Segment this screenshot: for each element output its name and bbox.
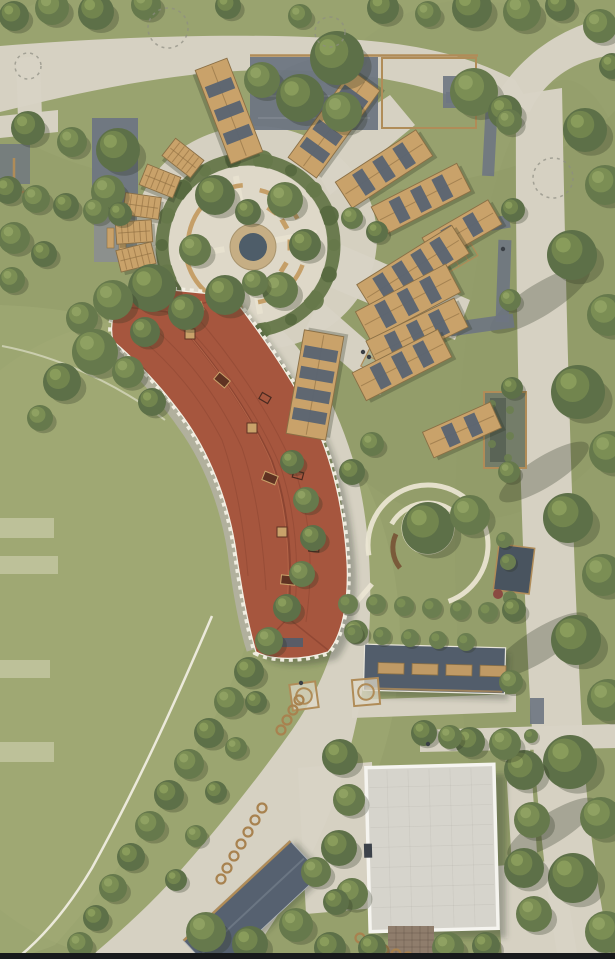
tree-canopy-highlight xyxy=(328,744,339,755)
tree-canopy-highlight xyxy=(556,238,571,253)
tree-canopy-highlight xyxy=(58,197,66,205)
chimney xyxy=(277,527,287,537)
tree-canopy-highlight xyxy=(505,380,512,387)
tree-canopy-highlight xyxy=(411,510,427,526)
tree-canopy-highlight xyxy=(495,733,505,743)
hedge-shrub xyxy=(285,313,297,325)
tree-canopy-highlight xyxy=(416,724,424,732)
shrub-highlight xyxy=(459,635,467,643)
tree-canopy-highlight xyxy=(552,743,568,759)
tree-canopy-highlight xyxy=(239,662,248,671)
tree-canopy-highlight xyxy=(169,872,176,879)
play-square-frame xyxy=(352,678,380,706)
shrub-highlight xyxy=(347,627,355,635)
tree-canopy-highlight xyxy=(328,893,336,901)
tree-canopy-highlight xyxy=(260,631,268,639)
tree-canopy-highlight xyxy=(199,723,208,732)
tree-canopy-highlight xyxy=(292,8,299,15)
shrub-highlight xyxy=(526,731,532,737)
tree-canopy-highlight xyxy=(100,286,112,298)
tree-canopy-highlight xyxy=(320,937,330,947)
tree-canopy-highlight xyxy=(88,202,96,210)
tree-canopy-highlight xyxy=(104,135,117,148)
slate-roof-building xyxy=(363,644,506,694)
tree-canopy-highlight xyxy=(420,5,428,13)
tree-canopy-highlight xyxy=(140,816,149,825)
bottom-bar xyxy=(0,953,615,959)
person-figure xyxy=(361,350,365,354)
tree-canopy-highlight xyxy=(502,464,509,471)
tree-canopy-highlight xyxy=(202,181,214,193)
tree-canopy-highlight xyxy=(122,847,130,855)
chimney xyxy=(247,423,257,433)
tree-canopy-highlight xyxy=(511,854,523,866)
flat-roof-building xyxy=(362,764,498,931)
garden-plant xyxy=(506,432,514,440)
shrub-highlight xyxy=(502,556,509,563)
tree-canopy-highlight xyxy=(457,501,469,513)
tree-canopy-highlight xyxy=(557,861,572,876)
roof-skylight xyxy=(378,663,404,675)
tree-canopy-highlight xyxy=(219,692,228,701)
tree-canopy-highlight xyxy=(520,807,531,818)
roof-skylight xyxy=(446,664,472,676)
person-figure xyxy=(426,742,430,746)
tree-canopy-highlight xyxy=(298,491,306,499)
shrub-highlight xyxy=(453,603,462,612)
shrub-highlight xyxy=(498,534,505,541)
tree-canopy-highlight xyxy=(505,202,512,209)
tree-canopy-highlight xyxy=(571,115,584,128)
field-practice-strip xyxy=(0,518,54,538)
shrub-highlight xyxy=(397,599,406,608)
tree-canopy-highlight xyxy=(72,936,80,944)
tree-canopy-highlight xyxy=(193,918,205,930)
shrub-highlight xyxy=(481,605,490,614)
shrub-highlight xyxy=(431,633,439,641)
garden-plant xyxy=(504,454,512,462)
garden-plant xyxy=(488,440,496,448)
shrub-highlight xyxy=(403,631,411,639)
tree-canopy-highlight xyxy=(273,187,284,198)
tree-canopy-highlight xyxy=(50,369,61,380)
tree-canopy-highlight xyxy=(503,674,510,681)
person-figure xyxy=(299,681,303,685)
tree-canopy-highlight xyxy=(344,463,352,471)
tree-canopy-highlight xyxy=(284,454,291,461)
tree-canopy-highlight xyxy=(118,361,128,371)
play-square xyxy=(352,678,380,706)
tree-canopy-highlight xyxy=(247,274,255,282)
tree-canopy-highlight xyxy=(560,373,576,389)
tree-canopy-highlight xyxy=(306,862,315,871)
tree-canopy-highlight xyxy=(284,81,298,95)
tree-canopy-highlight xyxy=(506,602,513,609)
road-path xyxy=(16,56,42,120)
tree-canopy-highlight xyxy=(229,740,236,747)
tree-canopy-highlight xyxy=(295,234,305,244)
tree-canopy-highlight xyxy=(363,938,371,946)
garden-plant xyxy=(506,406,514,414)
tree-canopy-highlight xyxy=(319,39,335,55)
shrub-highlight xyxy=(425,601,434,610)
person-figure xyxy=(501,247,505,251)
tree-canopy-highlight xyxy=(189,828,196,835)
tree-canopy-highlight xyxy=(240,203,248,211)
tree-canopy-highlight xyxy=(179,754,188,763)
tree-canopy-highlight xyxy=(209,784,216,791)
tree-canopy-highlight xyxy=(342,883,352,893)
shrub-highlight xyxy=(375,629,383,637)
tree-canopy-highlight xyxy=(174,299,185,310)
tree-canopy-highlight xyxy=(370,224,377,231)
field-practice-strip xyxy=(0,556,58,574)
tree-canopy-highlight xyxy=(345,210,352,217)
tree-canopy-highlight xyxy=(442,729,449,736)
tree-canopy-highlight xyxy=(32,409,40,417)
site-plan-canvas xyxy=(0,0,615,959)
tree-canopy-highlight xyxy=(4,271,12,279)
tree-canopy-highlight xyxy=(458,75,472,89)
tree-canopy-highlight xyxy=(364,436,371,443)
tree-canopy-highlight xyxy=(604,57,612,65)
tree-canopy-highlight xyxy=(501,113,509,121)
tree-canopy-highlight xyxy=(143,392,151,400)
tree-canopy-highlight xyxy=(305,529,313,537)
tree-canopy-highlight xyxy=(17,116,27,126)
tree-canopy-highlight xyxy=(329,98,341,110)
site-plan-aerial-render xyxy=(0,0,615,959)
tree-canopy-highlight xyxy=(250,67,261,78)
hedge-shrub xyxy=(156,239,168,251)
tree-canopy-highlight xyxy=(88,909,96,917)
white-roof xyxy=(366,764,498,931)
tree-canopy-highlight xyxy=(560,623,575,638)
field-practice-strip xyxy=(0,742,54,762)
tree-canopy-highlight xyxy=(589,14,599,24)
tree-canopy-highlight xyxy=(494,100,504,110)
tree-canopy-highlight xyxy=(4,227,14,237)
picnic-table xyxy=(107,228,114,248)
tree-canopy-highlight xyxy=(438,937,448,947)
entrance-notch xyxy=(364,844,372,858)
field-practice-strip xyxy=(0,660,50,678)
tree-canopy-highlight xyxy=(503,292,510,299)
tree-canopy-highlight xyxy=(27,189,35,197)
tree-canopy-highlight xyxy=(594,300,607,313)
tree-canopy-highlight xyxy=(339,789,349,799)
hedge-shrub xyxy=(328,239,340,251)
tree-canopy-highlight xyxy=(212,281,224,293)
tree-canopy-highlight xyxy=(594,685,607,698)
tree-canopy-highlight xyxy=(327,835,338,846)
tree-canopy-highlight xyxy=(80,336,94,350)
person-figure xyxy=(367,355,371,359)
tree-canopy-highlight xyxy=(62,132,71,141)
roof-skylight xyxy=(412,663,438,675)
tree-canopy-highlight xyxy=(135,322,144,331)
tree-canopy-highlight xyxy=(72,307,82,317)
tree-canopy-highlight xyxy=(238,931,249,942)
tree-canopy-highlight xyxy=(552,501,567,516)
tree-canopy-highlight xyxy=(285,913,295,923)
hedge-shrub xyxy=(285,165,297,177)
tree-canopy-highlight xyxy=(4,6,13,15)
walkway-strip xyxy=(530,698,544,724)
tree-canopy-highlight xyxy=(249,694,256,701)
tree-canopy-highlight xyxy=(104,878,112,886)
tree-canopy-highlight xyxy=(596,437,609,450)
tree-canopy-highlight xyxy=(592,917,605,930)
flower-bush xyxy=(493,589,503,599)
shrub-highlight xyxy=(369,597,378,606)
tree-canopy-highlight xyxy=(97,180,107,190)
tree-canopy-highlight xyxy=(159,785,168,794)
tree-canopy-highlight xyxy=(185,239,195,249)
tree-canopy-highlight xyxy=(477,936,485,944)
tree-canopy-highlight xyxy=(36,245,44,253)
pond-water xyxy=(239,233,267,261)
tree-canopy-highlight xyxy=(294,565,302,573)
shrub-highlight xyxy=(341,597,350,606)
tree-canopy-highlight xyxy=(522,901,533,912)
tree-canopy-highlight xyxy=(112,206,119,213)
tree-canopy-highlight xyxy=(592,171,604,183)
tree-canopy-highlight xyxy=(136,271,150,285)
tree-canopy-highlight xyxy=(278,598,286,606)
tree-canopy-highlight xyxy=(587,803,600,816)
tree-canopy-highlight xyxy=(589,560,602,573)
